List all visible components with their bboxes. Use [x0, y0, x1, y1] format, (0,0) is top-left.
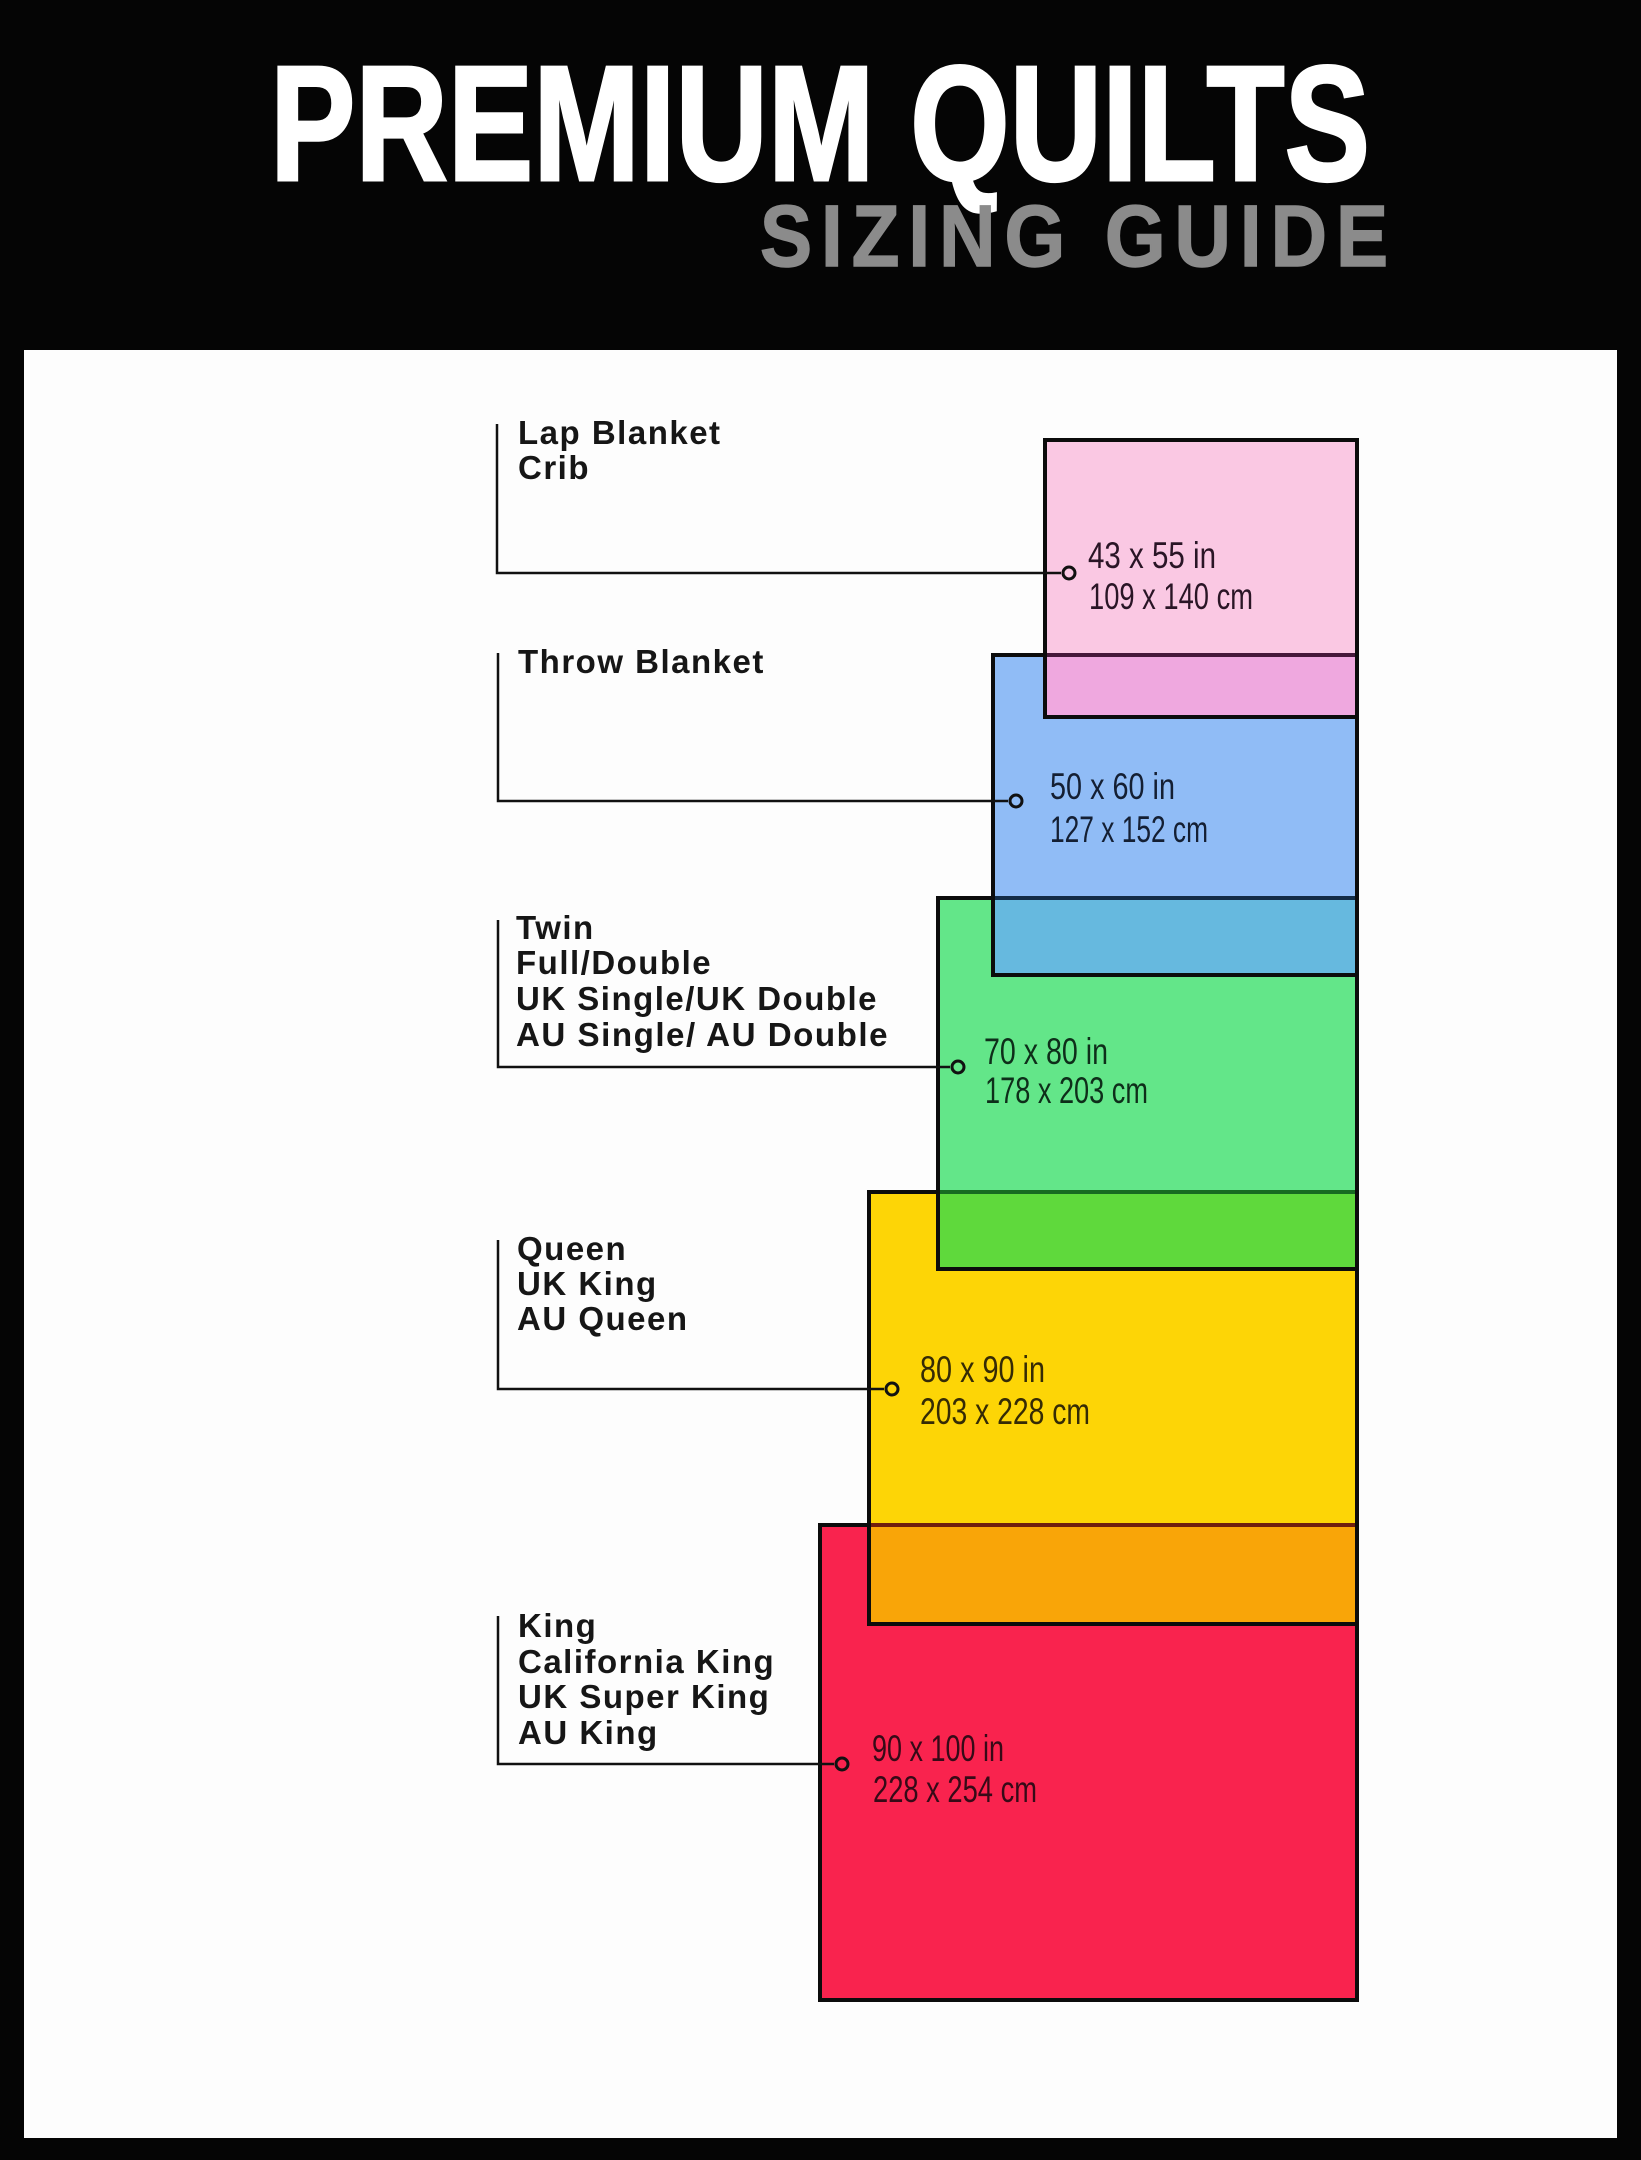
svg-text:Twin: Twin — [516, 909, 595, 946]
svg-text:King: King — [518, 1607, 597, 1644]
svg-text:UK King: UK King — [517, 1265, 658, 1302]
svg-text:70 x 80 in: 70 x 80 in — [984, 1031, 1108, 1072]
svg-text:50 x 60 in: 50 x 60 in — [1050, 766, 1175, 807]
svg-text:Queen: Queen — [517, 1230, 627, 1267]
svg-text:AU Queen: AU Queen — [517, 1300, 689, 1337]
svg-text:Throw Blanket: Throw Blanket — [518, 643, 765, 680]
svg-text:AU Single/ AU Double: AU Single/ AU Double — [516, 1016, 889, 1053]
svg-text:Full/Double: Full/Double — [516, 944, 712, 981]
svg-text:California King: California King — [518, 1643, 775, 1680]
svg-text:178 x 203 cm: 178 x 203 cm — [985, 1070, 1148, 1111]
svg-text:AU King: AU King — [518, 1714, 659, 1751]
svg-text:127 x 152 cm: 127 x 152 cm — [1050, 809, 1208, 850]
svg-text:Crib: Crib — [518, 449, 590, 486]
svg-text:UK Super King: UK Super King — [518, 1678, 770, 1715]
svg-text:109 x 140 cm: 109 x 140 cm — [1089, 576, 1253, 617]
svg-text:UK Single/UK Double: UK Single/UK Double — [516, 980, 878, 1017]
svg-text:SIZING GUIDE: SIZING GUIDE — [760, 188, 1397, 285]
svg-text:80 x 90 in: 80 x 90 in — [920, 1349, 1045, 1390]
svg-text:43 x 55 in: 43 x 55 in — [1088, 535, 1216, 576]
svg-text:90 x 100 in: 90 x 100 in — [872, 1728, 1004, 1769]
svg-text:203 x 228 cm: 203 x 228 cm — [920, 1391, 1090, 1432]
svg-text:Lap Blanket: Lap Blanket — [518, 414, 722, 451]
svg-text:228 x 254 cm: 228 x 254 cm — [873, 1769, 1037, 1810]
